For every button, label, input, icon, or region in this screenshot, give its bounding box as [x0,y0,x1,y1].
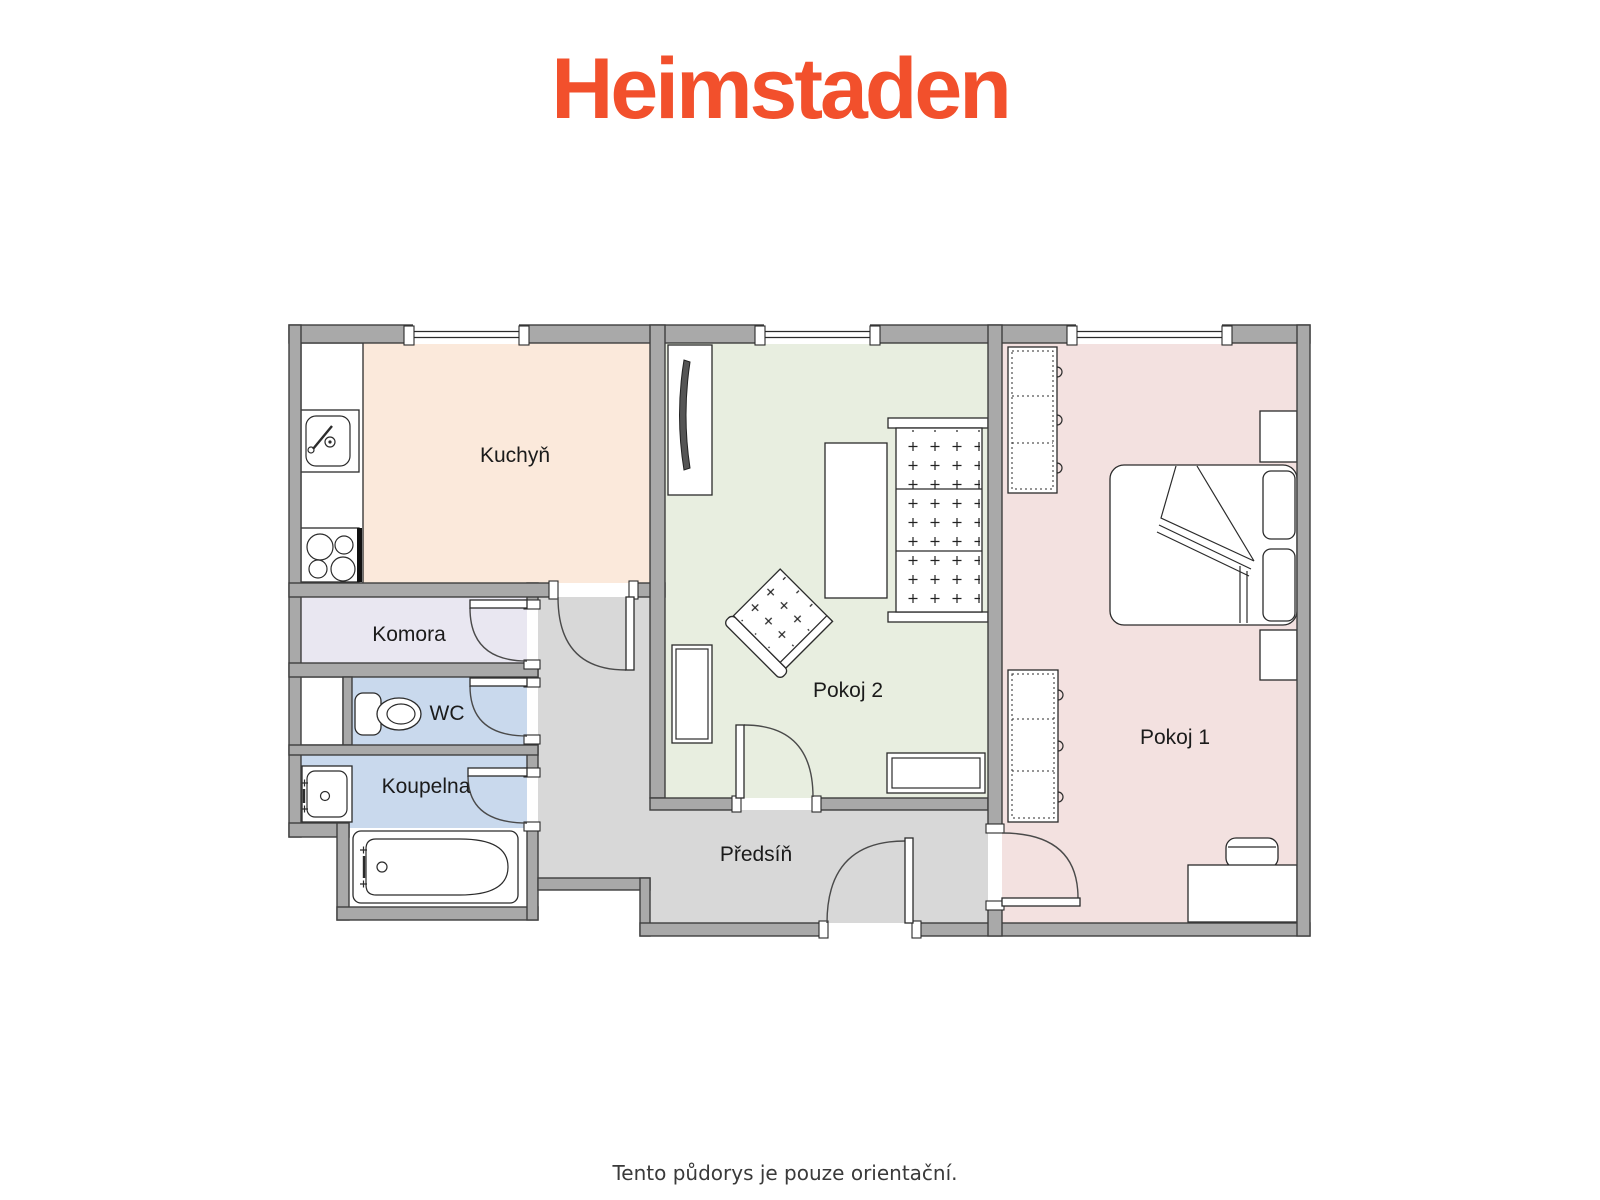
pillow [1263,471,1295,539]
nightstand-top [1260,411,1297,462]
label-kuchyn: Kuchyň [480,444,550,467]
label-predsin: Předsíň [720,843,792,866]
coffee-table [825,443,887,598]
wardrobe-bottom [1008,670,1063,822]
window-kuchyn [404,324,529,345]
label-pokoj1: Pokoj 1 [1140,726,1210,749]
window-pokoj2 [755,324,880,345]
label-komora: Komora [372,623,446,646]
shelf [672,645,712,743]
window-pokoj1 [1067,324,1232,345]
wc-niche [299,677,343,745]
kitchen-counter [301,343,363,583]
page: Heimstaden [0,0,1600,1200]
tv-stand [668,345,712,495]
bathroom-sink-icon [301,766,352,822]
desk [1188,865,1297,922]
bathtub-icon [353,831,518,903]
disclaimer-text: Tento půdorys je pouze orientační. [611,1161,957,1185]
floor-plan: Heimstaden [0,0,1600,1200]
stove-icon [301,528,362,582]
kitchen-sink-icon [301,410,359,472]
bed [1110,465,1297,625]
sideboard [887,753,985,793]
desk-chair [1226,838,1278,868]
windows [404,324,1232,345]
label-pokoj2: Pokoj 2 [813,679,883,702]
label-wc: WC [430,702,465,725]
nightstand-bottom [1260,630,1297,680]
pillow [1263,549,1295,621]
label-koupelna: Koupelna [382,775,471,798]
wardrobe-top [1008,347,1062,493]
sofa [888,418,988,622]
brand-logo: Heimstaden [551,41,1009,137]
